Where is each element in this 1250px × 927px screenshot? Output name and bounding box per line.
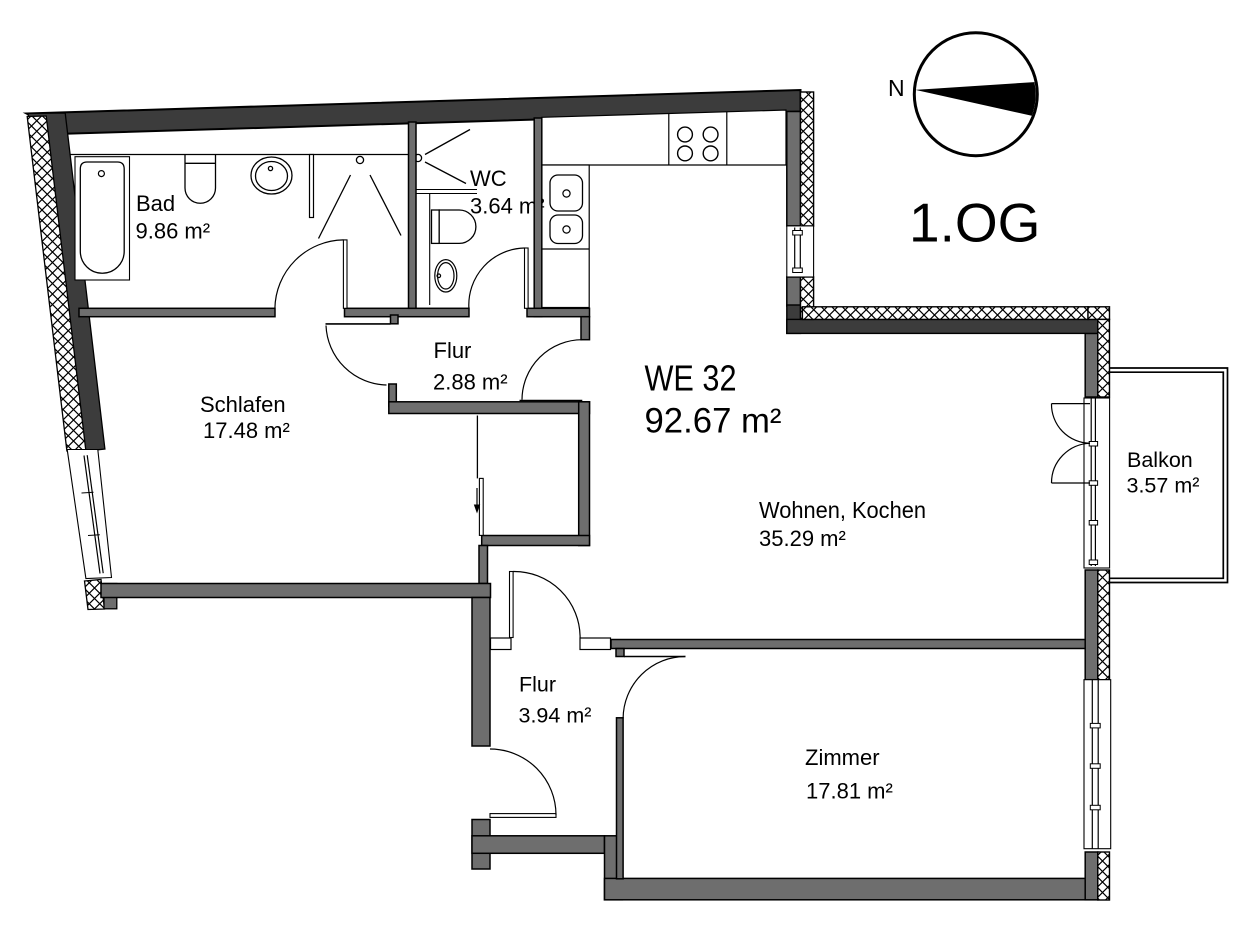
svg-text:35.29 m²: 35.29 m² (759, 526, 846, 551)
svg-text:17.48 m²: 17.48 m² (203, 418, 290, 443)
svg-text:Schlafen: Schlafen (200, 392, 286, 417)
svg-text:Bad: Bad (136, 191, 175, 216)
svg-text:Wohnen, Kochen: Wohnen, Kochen (759, 497, 926, 523)
svg-text:WE 32: WE 32 (645, 357, 737, 398)
svg-text:WC: WC (470, 166, 507, 191)
svg-text:3.94 m²: 3.94 m² (519, 704, 592, 728)
svg-text:17.81 m²: 17.81 m² (806, 779, 893, 804)
svg-text:Zimmer: Zimmer (805, 745, 880, 770)
svg-text:9.86 m²: 9.86 m² (136, 219, 211, 244)
svg-text:3.64 m²: 3.64 m² (470, 194, 545, 219)
svg-text:2.88 m²: 2.88 m² (433, 370, 508, 395)
svg-text:N: N (888, 75, 905, 101)
svg-text:Balkon: Balkon (1127, 448, 1193, 472)
svg-text:Flur: Flur (519, 673, 556, 697)
svg-text:1.OG: 1.OG (909, 192, 1040, 254)
svg-text:3.57 m²: 3.57 m² (1127, 473, 1200, 497)
svg-text:92.67 m²: 92.67 m² (645, 401, 782, 440)
svg-text:Flur: Flur (434, 338, 472, 363)
